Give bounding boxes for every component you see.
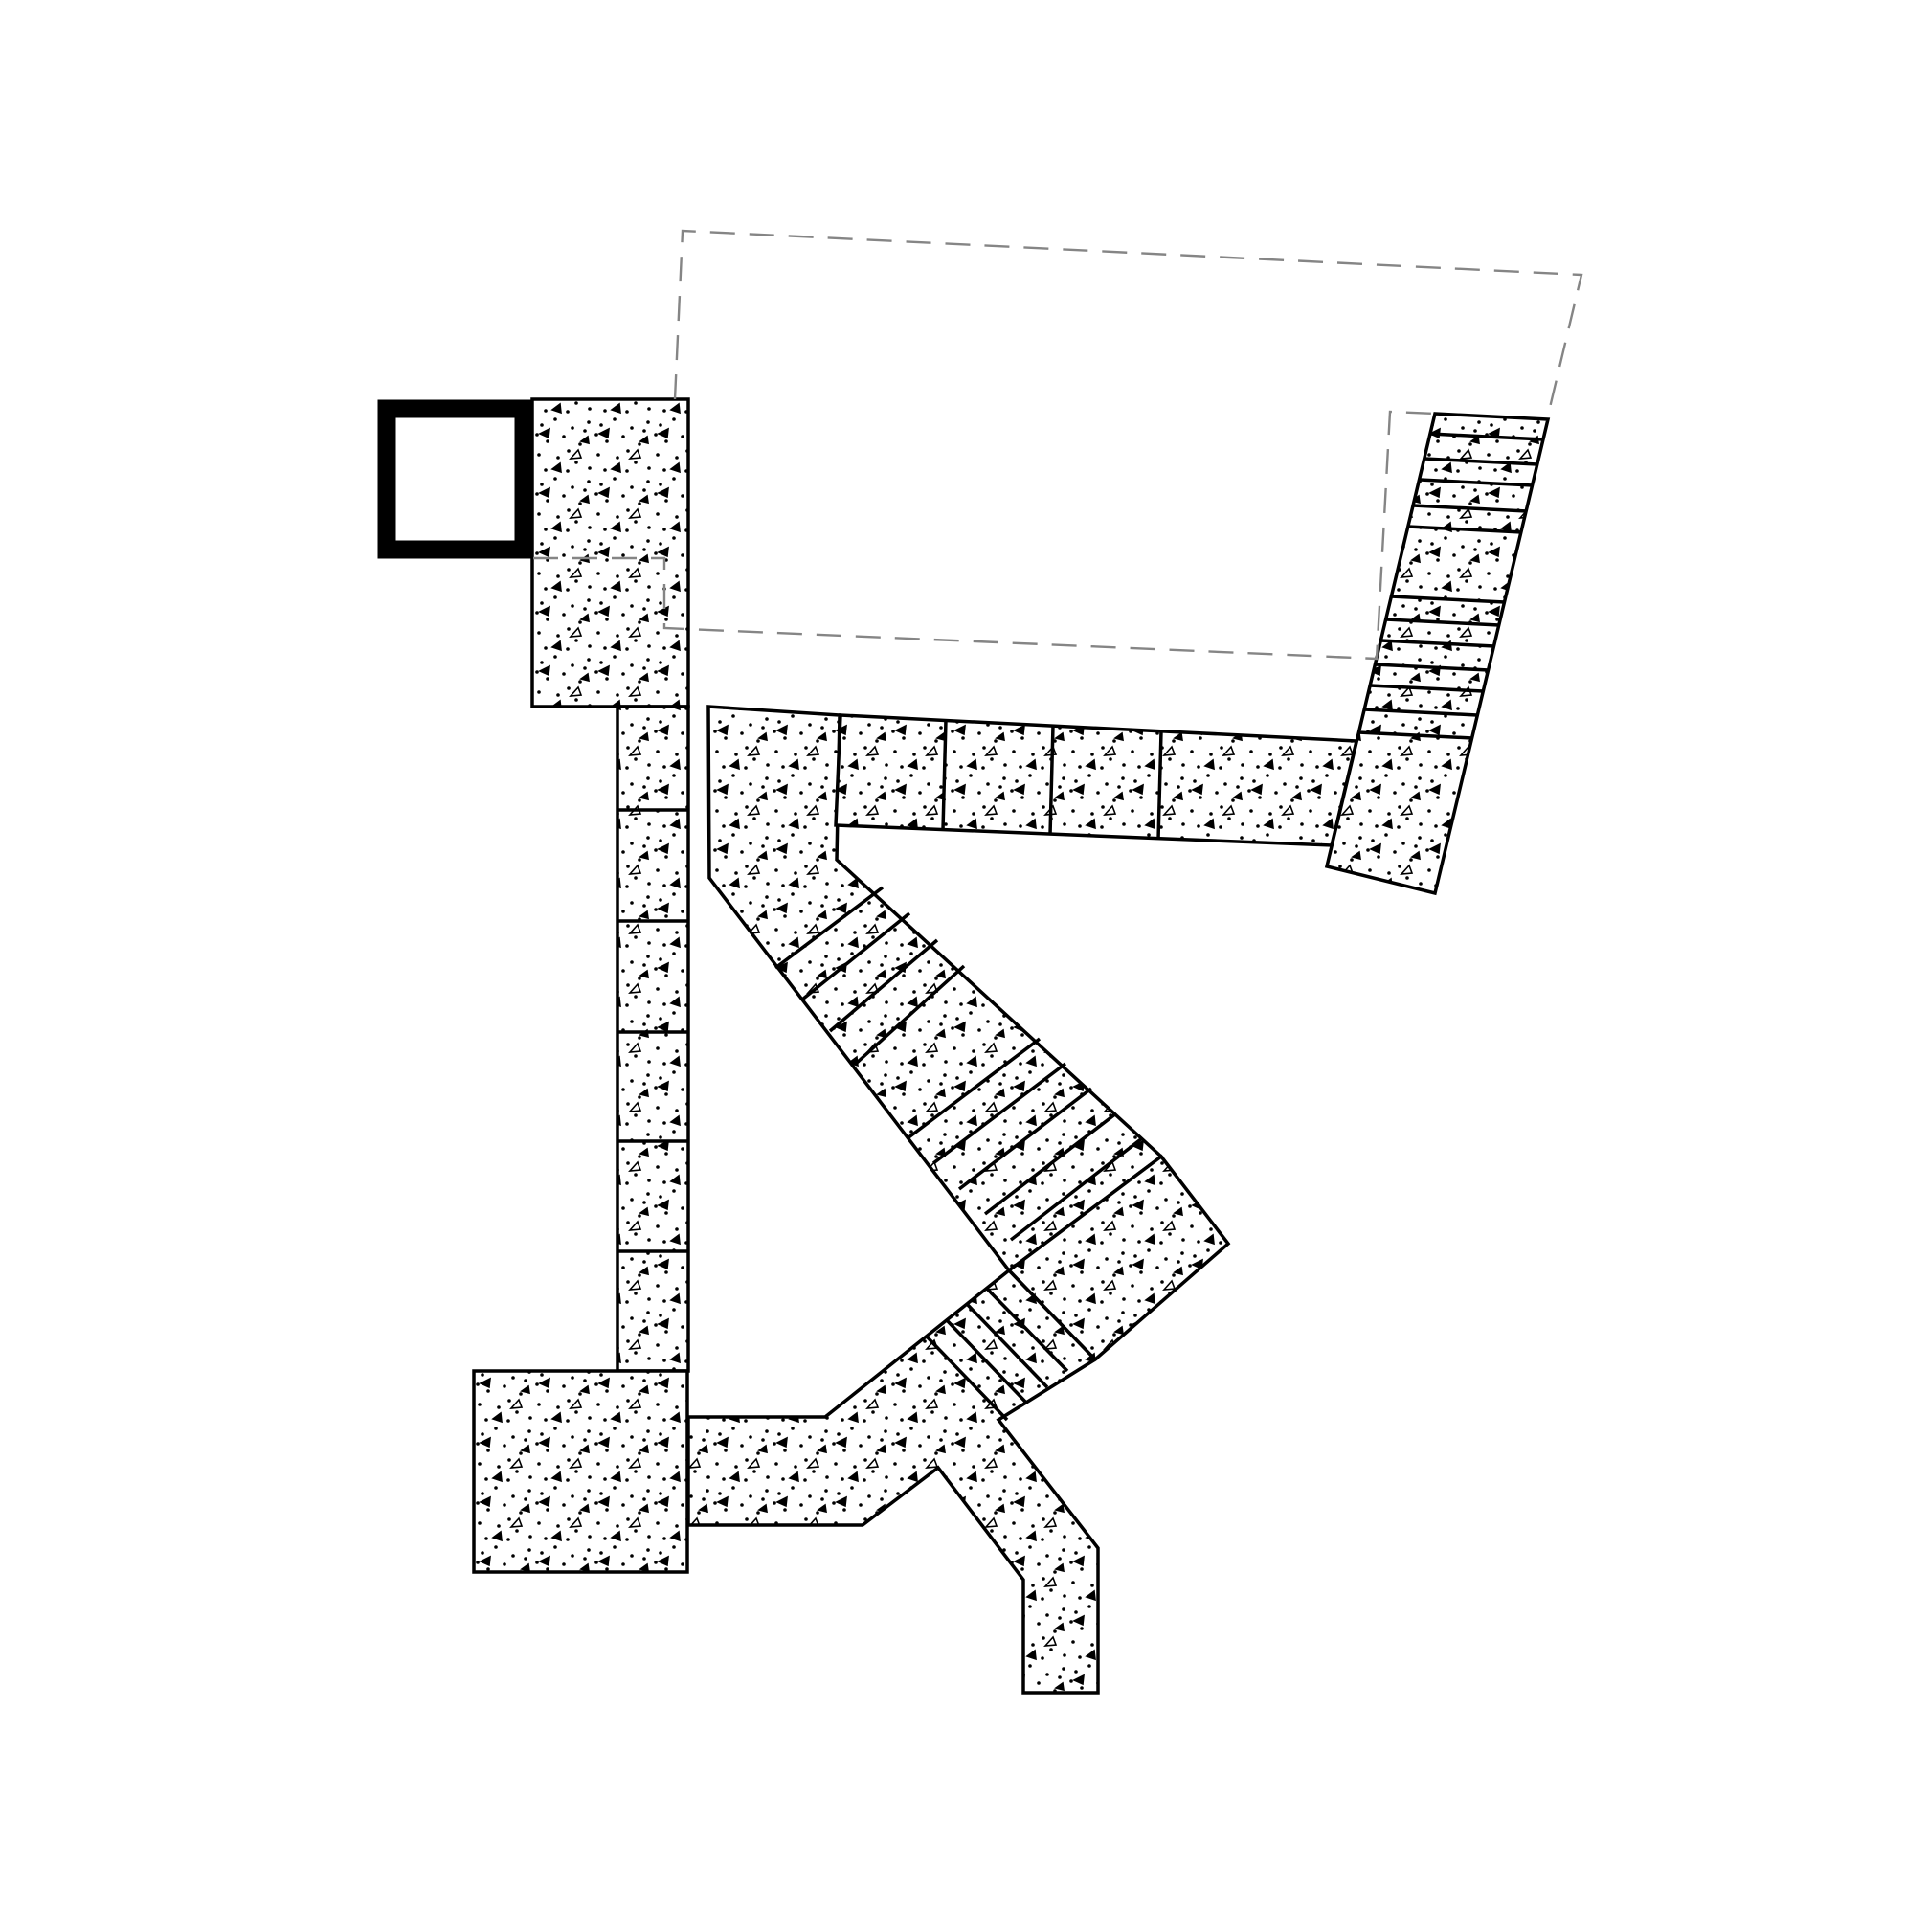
left-walkway-column bbox=[617, 707, 688, 1371]
upper-entry-block bbox=[532, 399, 688, 707]
lower-plaza-block bbox=[474, 1371, 687, 1572]
plan-canvas bbox=[0, 0, 1928, 1932]
architectural-plan bbox=[0, 0, 1928, 1932]
